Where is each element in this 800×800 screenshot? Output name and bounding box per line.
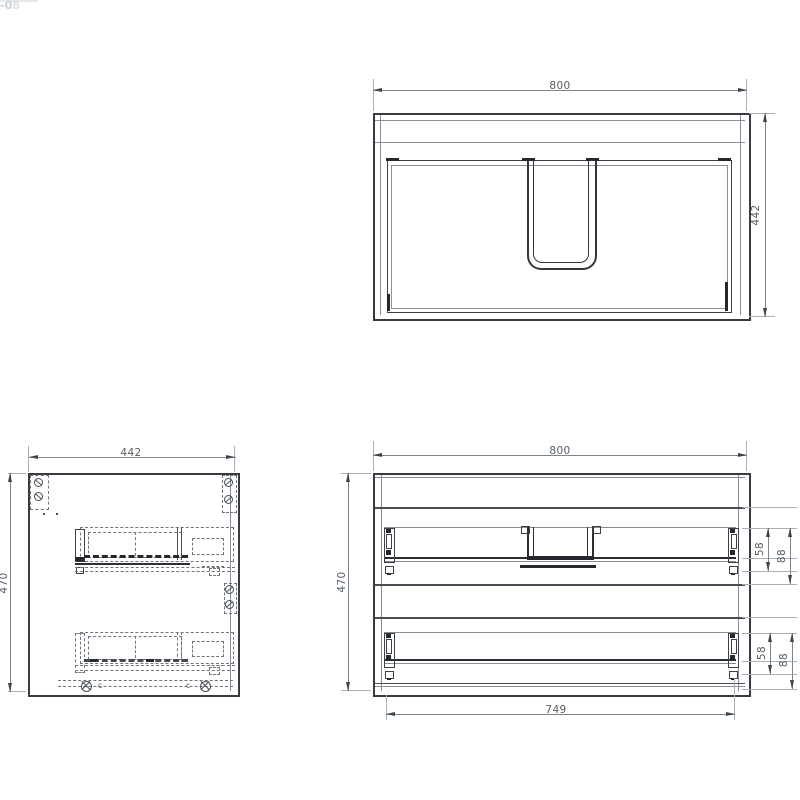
extension-line [749,316,775,317]
extension-line [742,689,797,690]
upper-slide-block [75,557,84,561]
hidden-line [177,632,178,662]
dim-arrow [386,712,395,716]
rail-clip-hidden [209,667,220,675]
dim-arrow [346,473,350,482]
rail-seam-line [384,527,736,528]
countertop-back-edge [375,120,745,121]
back-rail-line [375,142,745,143]
slide-bracket-slot [731,534,737,549]
dim-arrow [788,575,792,584]
lower-drawer-rail-lower [384,663,736,664]
slide-housing-hidden [192,641,224,657]
corner-tick [725,282,728,311]
left-panel-inner-line [380,115,381,315]
extension-line [746,79,747,111]
dim-label-lower-rail-58: 58 [756,633,768,673]
drain-channel-inner [533,161,589,263]
bottom-rail-line [375,683,745,684]
slide-bracket-cap [386,529,391,533]
rail-dash-mark [90,659,98,662]
lower-drawer-rail [384,659,736,661]
dim-arrow [766,562,770,571]
lower-slide-bracket-hidden [75,633,85,673]
dim-label-side-view-width: 442 [111,447,151,459]
dim-label-lower-rail-88: 88 [778,640,790,680]
hidden-line [135,532,136,556]
dim-arrow [373,88,382,92]
technical-drawing: -08 -0 800 442 [0,0,800,800]
extension-line [742,571,797,572]
slide-housing-hidden [192,538,224,555]
slide-bracket-slot [386,534,392,549]
clip-mark: c [98,682,102,690]
dim-arrow [29,455,38,459]
sink-bracket-tab [592,526,601,534]
dim-arrow [788,528,792,537]
slide-foot-stem [731,573,735,575]
dot-mark [43,513,45,515]
dim-arrow [768,665,772,674]
slide-bracket-slot [731,639,737,654]
lower-slide-rail-hidden [84,659,188,662]
dim-label-upper-rail-58: 58 [754,529,766,569]
dim-label-top-view-width: 800 [540,80,580,92]
dim-label-upper-rail-88: 88 [776,536,788,576]
dim-line-side-view-height [10,473,11,692]
extension-line [234,446,235,472]
dim-arrow [763,308,767,317]
dim-arrow [8,683,12,692]
sink-bracket-underline [520,565,596,568]
dim-arrow [790,680,794,689]
slide-bracket-block [386,655,391,660]
extension-line [28,446,29,472]
slide-bracket-cap [386,634,391,638]
dim-arrow [738,88,747,92]
sink-bracket-tab [521,526,530,534]
slide-bracket-block [730,655,735,660]
slide-bracket-block [730,550,735,555]
shelf-line [375,617,745,619]
extension-line [749,113,775,114]
extension-line [386,695,387,720]
corner-tick [387,294,390,311]
dim-label-top-view-depth: 442 [750,195,762,235]
dim-arrow [763,113,767,122]
rail-clip-hidden [209,568,220,576]
dim-label-inner-width: 749 [536,704,576,716]
dim-arrow [226,455,235,459]
upper-rail-line [75,563,190,565]
slide-bracket-slot [386,639,392,654]
dim-line-top-view-depth [765,113,766,317]
extension-line [742,507,797,508]
slide-foot-stem [387,678,391,680]
rail-dash-mark [146,659,154,662]
clip-mark: c [186,682,190,690]
dim-arrow [8,473,12,482]
sink-bracket-base [527,556,594,560]
edge-artifact-text: -0 [0,0,12,12]
upper-drawer-rail-lower [384,561,736,562]
bottom-edge-inner-line [375,686,745,687]
dim-arrow [766,528,770,537]
slide-bracket-block [386,550,391,555]
slide-bracket-cap [730,634,735,638]
dim-arrow [726,712,735,716]
hidden-line [202,566,224,567]
shelf-line [375,584,745,586]
dim-label-side-view-height: 470 [0,563,10,603]
upper-slide-rail-hidden [84,555,188,558]
extension-line [742,617,797,618]
dim-label-front-view-width: 800 [540,445,580,457]
shelf-line [375,507,745,509]
dim-arrow [373,453,382,457]
hidden-line [181,632,182,662]
dim-line-front-view-height [348,473,349,691]
dim-arrow [768,633,772,642]
corner-tick [386,158,399,161]
right-panel-inner-line [740,115,741,315]
top-edge-inner-line [375,477,745,478]
rail-seam-line [384,632,736,633]
corner-tick [718,158,731,161]
dim-arrow [738,453,747,457]
slide-bracket-cap [730,529,735,533]
extension-line [373,79,374,111]
extension-line [742,584,797,585]
extension-line [742,558,797,559]
dim-label-front-view-height: 470 [336,562,348,602]
dim-arrow [790,633,794,642]
hidden-line [202,665,224,666]
hidden-line [135,636,136,658]
dot-mark [56,513,58,515]
slide-foot-stem [387,573,391,575]
dim-arrow [346,682,350,691]
